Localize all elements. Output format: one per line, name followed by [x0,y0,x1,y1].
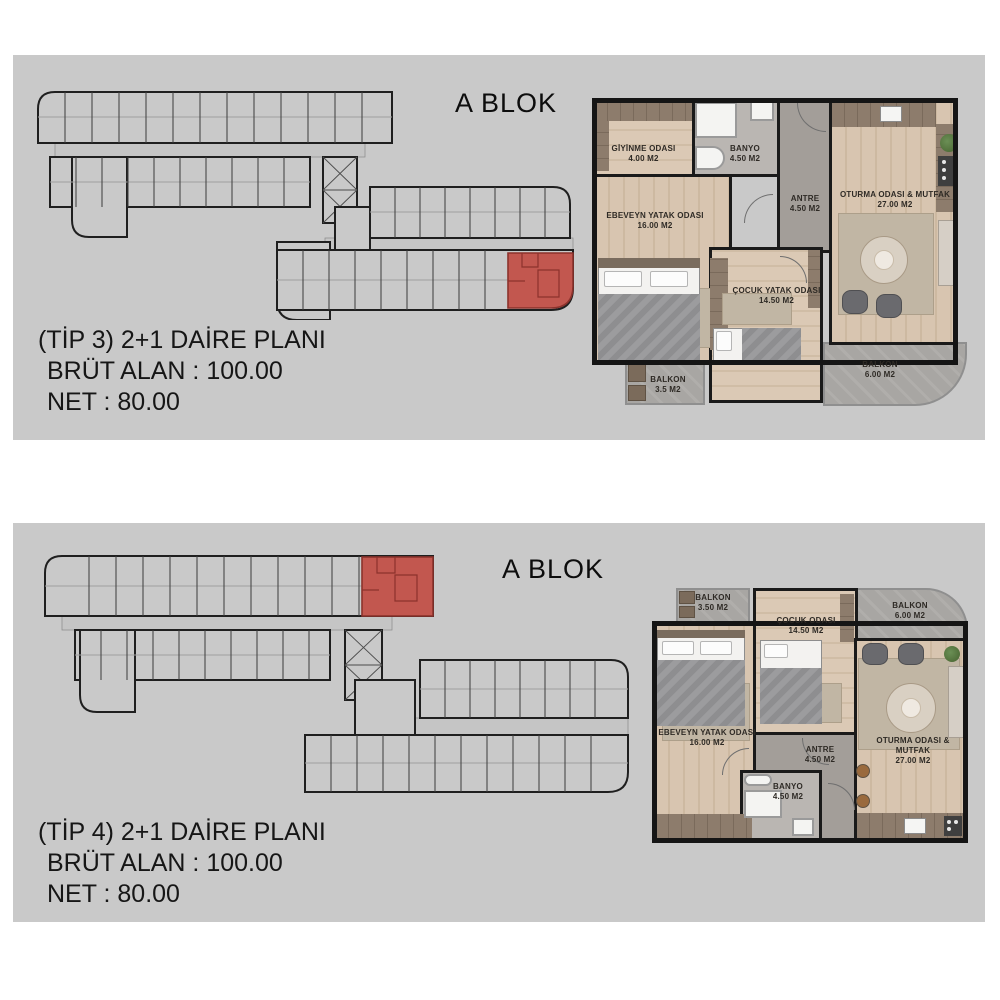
toilet [792,818,814,836]
wardrobe [595,101,692,121]
panel-tip4: A BLOK (TİP 4) 2+1 DAİRE PLANI BRÜT [13,523,985,922]
sofa [948,666,964,738]
table-decor [874,250,894,270]
room-label-master: EBEVEYN YATAK ODASI 16.00 M2 [657,728,757,748]
armchair [898,643,924,665]
building-wing-lower [305,735,628,792]
brochure-page: A BLOK (TİP 3) 2+1 DAİRE PLANI BRÜT [0,0,1000,1000]
sofa [938,220,956,286]
gross-area-line: BRÜT ALAN : 100.00 [38,356,326,387]
room-label-hall: ANTRE 4.50 M2 [775,194,835,214]
plan-info: (TİP 3) 2+1 DAİRE PLANI BRÜT ALAN : 100.… [38,325,326,418]
building-connector [335,207,370,250]
corridor [55,143,365,157]
blanket [742,328,801,365]
net-area-line: NET : 80.00 [38,879,326,910]
building-wing-top [38,92,392,143]
plan-type-line: (TİP 4) 2+1 DAİRE PLANI [38,817,326,848]
room-label-balcony-large: BALKON 6.00 M2 [862,601,958,621]
blanket [760,668,822,724]
toilet [750,101,774,121]
room-label-balcony-small: BALKON 3.50 M2 [676,593,750,613]
panel-tip3: A BLOK (TİP 3) 2+1 DAİRE PLANI BRÜT [13,55,985,440]
cooktop [944,816,962,836]
pillow [662,641,694,655]
pillow [700,641,732,655]
plant [944,646,960,662]
room-label-kids: ÇOCUK ODASI 14.50 M2 [754,616,858,636]
armchair [876,294,902,318]
pillow [650,271,688,287]
highlighted-unit-tip4 [362,557,433,616]
room-label-kids: ÇOCUK YATAK ODASI 14.50 M2 [724,286,829,306]
apartment-plan-tip4: BALKON 3.50 M2 ÇOCUK ODASI 14.50 M2 BALK… [652,588,968,844]
room-label-living: OTURMA ODASI & MUTFAK 27.00 M2 [871,736,955,766]
armchair [842,290,868,314]
kitchen-sink [904,818,926,834]
room-label-balcony-small: BALKON 3.5 M2 [630,375,706,395]
bed-headboard [657,630,745,638]
apartment-plan-tip3: GİYİNME ODASI 4.00 M2 BANYO 4.50 M2 ANTR… [592,98,968,420]
room-label-bathroom: BANYO 4.50 M2 [710,144,780,164]
room-label-bathroom: BANYO 4.50 M2 [758,782,818,802]
pillow [764,644,788,658]
door-arc [744,194,773,223]
room-label-master: EBEVEYN YATAK ODASI 16.00 M2 [605,211,705,231]
bed-headboard [598,258,700,268]
blanket [598,294,700,363]
building-block-left [72,157,127,237]
armchair [862,643,888,665]
room-label-dressing: GİYİNME ODASI 4.00 M2 [596,144,691,164]
site-plan-tip4 [25,545,645,803]
shower [695,102,737,138]
kitchen-sink [880,106,902,122]
pillow [604,271,642,287]
gross-area-line: BRÜT ALAN : 100.00 [38,848,326,879]
stool [856,764,870,778]
net-area-line: NET : 80.00 [38,387,326,418]
plan-info: (TİP 4) 2+1 DAİRE PLANI BRÜT ALAN : 100.… [38,817,326,910]
site-plan-tip3 [25,85,590,320]
wardrobe [656,814,752,838]
plant [940,134,958,152]
blanket [657,660,745,726]
room-label-balcony-large: BALKON 6.00 M2 [832,360,928,380]
stool [856,794,870,808]
room-label-living: OTURMA ODASI & MUTFAK 27.00 M2 [835,190,955,210]
pillow [716,331,732,351]
plan-type-line: (TİP 3) 2+1 DAİRE PLANI [38,325,326,356]
room-label-hall: ANTRE 4.50 M2 [790,745,850,765]
cooktop [938,156,953,186]
corridor [62,616,392,630]
table-decor [901,698,921,718]
building-connector [355,680,415,740]
